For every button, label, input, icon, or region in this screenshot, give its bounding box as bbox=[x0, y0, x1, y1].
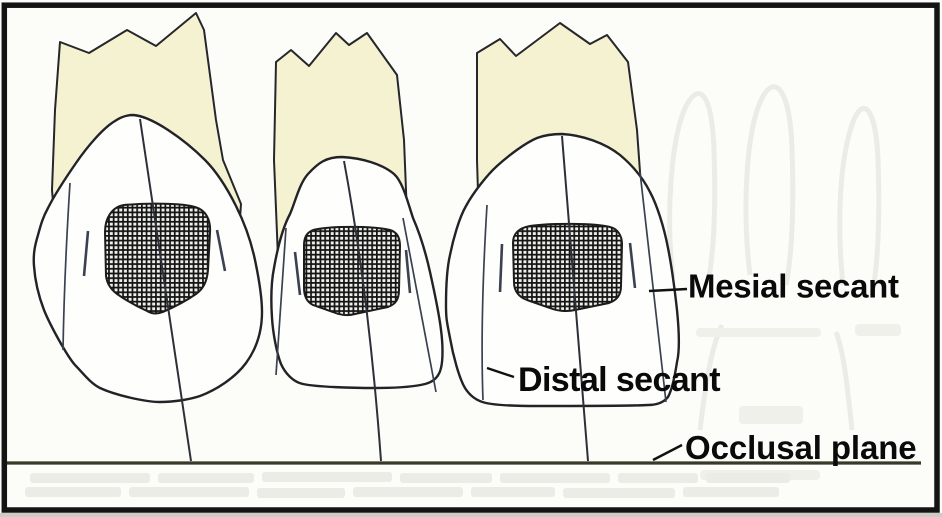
svg-text:Occlusal plane: Occlusal plane bbox=[685, 429, 917, 466]
svg-text:Distal secant: Distal secant bbox=[518, 361, 720, 399]
svg-text:Mesial secant: Mesial secant bbox=[688, 268, 899, 305]
